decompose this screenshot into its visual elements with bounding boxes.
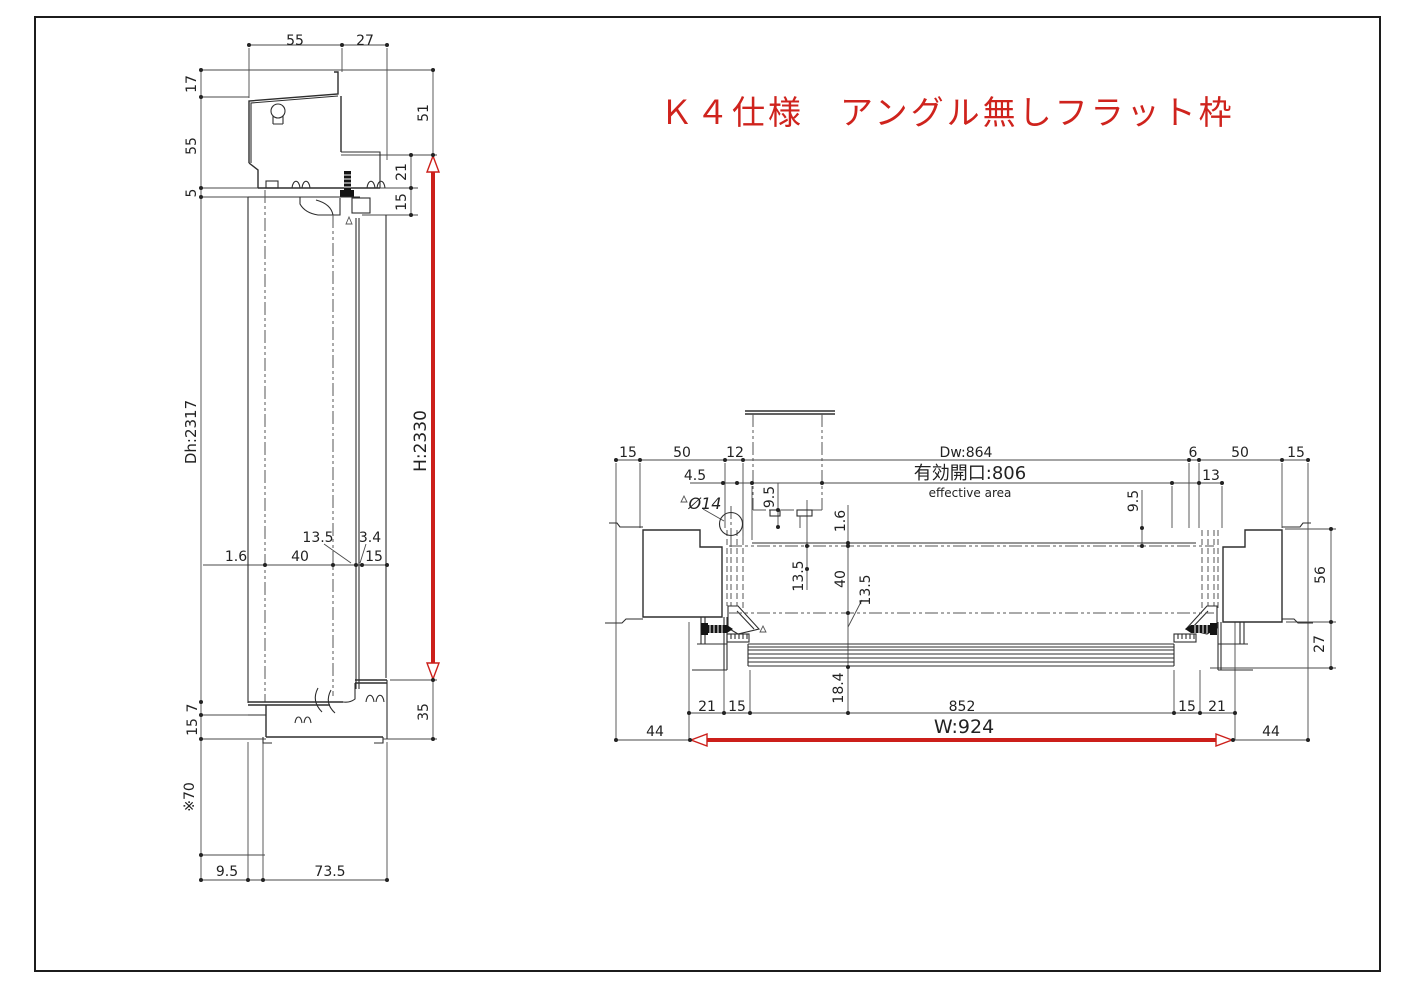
dim-9.5-right: 9.5 [1126,490,1142,512]
dim-13.5-left: 13.5 [302,530,333,546]
head-frame-profile [248,72,385,224]
dim-dia-14: Ø14 [688,494,722,513]
dim-13.5-b: 13.5 [858,574,874,605]
dim-9.5-bottom: 9.5 [216,864,238,880]
dim-73.5: 73.5 [314,864,345,880]
dim-15-tr: 15 [1287,445,1305,461]
dim-35: 35 [416,703,432,721]
dim-70: ※70 [182,782,198,812]
right-jamb-profile [1174,523,1313,670]
dim-40-left: 40 [291,549,309,565]
head-screw [340,171,354,197]
left-serrated-clip [727,634,749,642]
dim-1.6-right: 1.6 [833,510,849,532]
dim-7: 7 [185,704,201,713]
dim-27-right: 27 [1312,635,1328,653]
dim-21-br: 21 [1208,699,1226,715]
dim-9.5-left: 9.5 [762,486,778,508]
dim-1.6-left: 1.6 [225,549,247,565]
dim-44-right: 44 [1262,724,1280,740]
dim-55-top: 55 [286,33,304,49]
left-jamb-profile [605,496,766,670]
dim-5: 5 [184,189,200,198]
dim-door-width: Dw:864 [940,445,993,461]
dim-21-bl: 21 [698,699,716,715]
dimension-ticks [199,43,1333,882]
dimension-labels: 552717555512115Dh:2317H:233013.53.41.640… [182,33,1329,880]
dim-13.5-a: 13.5 [791,560,807,591]
dim-frame-width: W:924 [934,716,994,738]
dim-51: 51 [416,104,432,122]
dim-6: 6 [1189,445,1198,461]
dim-3.4: 3.4 [359,530,381,546]
dim-44-left: 44 [646,724,664,740]
drawing-title: Ｋ４仕様 アングル無しフラット枠 [660,86,1235,134]
dim-21: 21 [394,163,410,181]
dim-13: 13 [1202,468,1220,484]
dim-56: 56 [1313,566,1329,584]
dim-15-bl: 15 [728,699,746,715]
dim-50-right: 50 [1231,445,1249,461]
dim-50-left: 50 [673,445,691,461]
dim-15-mid: 15 [365,549,383,565]
dim-18.4: 18.4 [831,672,847,703]
dim-12: 12 [726,445,744,461]
right-section-view [605,411,1336,746]
sill-profile [248,680,387,743]
dim-852: 852 [949,699,976,715]
dim-effective-opening: 有効開口:806 [914,463,1026,484]
dim-door-height: Dh:2317 [182,400,200,464]
door-leaf-open-phantom [745,411,835,528]
dim-15-tl: 15 [619,445,637,461]
dim-4.5: 4.5 [684,468,706,484]
dim-15-head: 15 [394,193,410,211]
threshold-rail-band [748,644,1174,666]
right-serrated-clip [1174,634,1196,642]
label-effective-area: effective area [929,486,1012,500]
dim-40-right: 40 [833,570,849,588]
dim-27-top: 27 [356,33,374,49]
right-dimension-lines [616,460,1336,740]
dim-17: 17 [184,75,200,93]
dim-frame-height: H:2330 [411,410,431,472]
dim-15-sill: 15 [185,718,201,736]
dim-15-br: 15 [1178,699,1196,715]
cad-drawing: 552717555512115Dh:2317H:233013.53.41.640… [0,0,1415,1000]
dim-55-left: 55 [184,137,200,155]
cad-sheet: { "title": { "text": "Ｋ４仕様 アングル無しフラット枠",… [0,0,1415,1000]
door-leaf-phantom-lines [248,190,386,703]
